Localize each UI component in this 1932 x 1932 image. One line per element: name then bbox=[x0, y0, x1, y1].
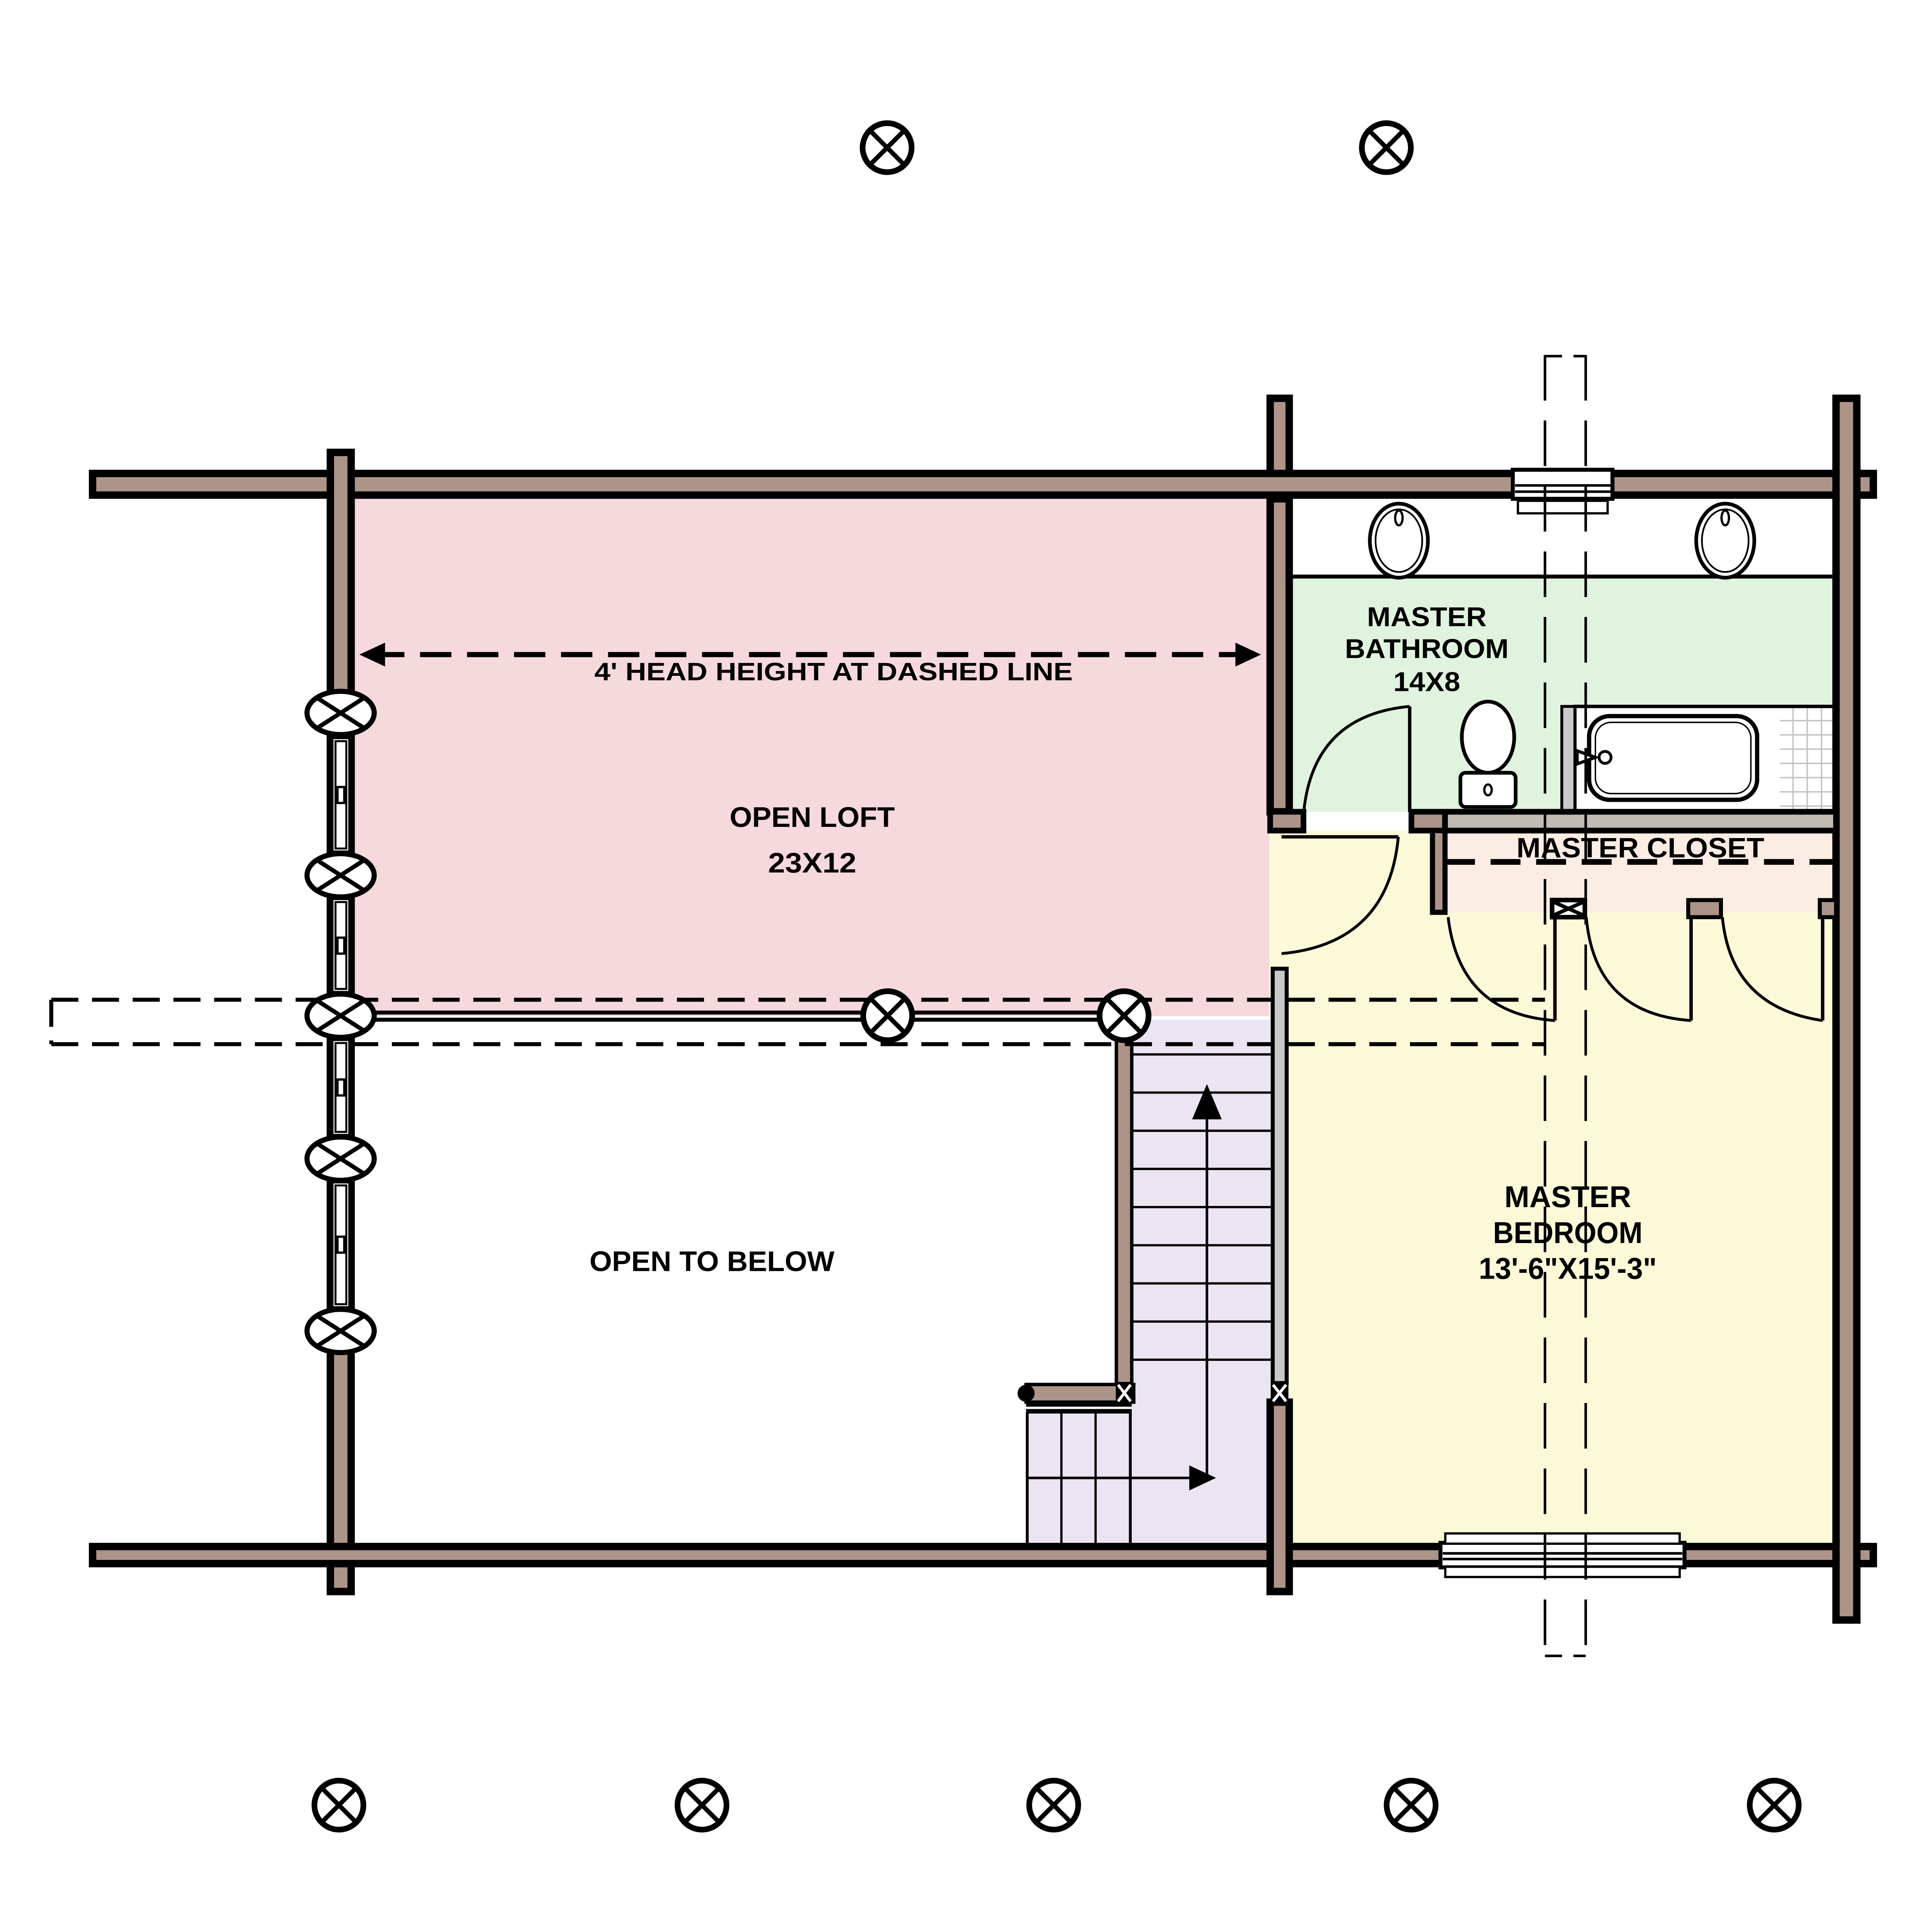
column-marker-icon bbox=[307, 994, 374, 1037]
tub-partition-wall bbox=[1562, 706, 1575, 812]
closet-north-wall bbox=[1445, 812, 1836, 831]
bathroom-label-line1: MASTER bbox=[1367, 601, 1487, 632]
window-symbol bbox=[332, 737, 350, 852]
window-symbol bbox=[332, 1182, 350, 1308]
column-marker-icon bbox=[1387, 1781, 1436, 1830]
north-wall-window bbox=[1513, 470, 1612, 514]
floor-plan-page: 4' HEAD HEIGHT AT DASHED LINE OPEN LOFT … bbox=[0, 0, 1932, 1932]
open-to-below-label: OPEN TO BELOW bbox=[590, 1245, 835, 1277]
head-height-label: 4' HEAD HEIGHT AT DASHED LINE bbox=[594, 657, 1073, 685]
column-marker-icon bbox=[862, 123, 912, 172]
stair-half-wall bbox=[1273, 969, 1287, 1383]
newel-post-icon bbox=[1271, 1383, 1289, 1404]
railing-end-cap bbox=[1017, 1385, 1034, 1402]
closet-post bbox=[1820, 900, 1836, 917]
sink-symbol bbox=[1696, 503, 1754, 578]
divider-wall-lower bbox=[1270, 1402, 1289, 1592]
bedroom-label-line2: BEDROOM bbox=[1493, 1216, 1643, 1250]
column-marker-icon bbox=[307, 691, 374, 735]
column-marker-icon bbox=[1029, 1781, 1078, 1830]
open-loft-size-label: 23X12 bbox=[768, 847, 856, 879]
closet-post bbox=[1688, 900, 1721, 917]
column-marker-icon bbox=[1362, 123, 1411, 172]
column-marker-icon bbox=[677, 1781, 726, 1830]
bathtub-symbol bbox=[1575, 706, 1836, 812]
column-marker-icon bbox=[307, 854, 374, 897]
roof-dashed-box bbox=[51, 1000, 330, 1044]
sink-symbol bbox=[1370, 503, 1428, 578]
closet-label: MASTER CLOSET bbox=[1517, 833, 1764, 864]
column-marker-icon bbox=[307, 1137, 374, 1180]
east-wall bbox=[1836, 398, 1857, 1620]
stair-side-railing bbox=[1116, 1020, 1132, 1384]
toilet-symbol bbox=[1460, 702, 1515, 807]
open-loft-area bbox=[351, 499, 1273, 1016]
column-marker-icon bbox=[1100, 991, 1149, 1040]
bedroom-label-line1: MASTER bbox=[1504, 1180, 1631, 1214]
column-marker-icon bbox=[307, 1309, 374, 1352]
bathroom-size-label: 14X8 bbox=[1393, 666, 1460, 697]
column-marker-icon bbox=[315, 1781, 364, 1830]
newel-post-icon bbox=[1116, 1383, 1133, 1404]
open-loft-label: OPEN LOFT bbox=[730, 801, 895, 833]
bathroom-south-wall-west bbox=[1270, 812, 1303, 831]
closet-west-wall bbox=[1432, 831, 1445, 913]
faucet-icon bbox=[1395, 510, 1403, 525]
bedroom-size-label: 13'-6"X15'-3" bbox=[1479, 1252, 1657, 1286]
floor-plan-drawing: 4' HEAD HEIGHT AT DASHED LINE OPEN LOFT … bbox=[0, 0, 1932, 1932]
window-symbol bbox=[332, 1039, 350, 1136]
divider-log-stub-top bbox=[1270, 398, 1289, 474]
column-marker-icon bbox=[863, 991, 912, 1040]
south-wall-window bbox=[1440, 1534, 1685, 1577]
window-symbol bbox=[1440, 1543, 1685, 1567]
column-marker-icon bbox=[1750, 1781, 1799, 1830]
bathroom-label-line2: BATHROOM bbox=[1345, 633, 1509, 664]
loft-bathroom-divider-wall bbox=[1270, 499, 1289, 812]
window-symbol bbox=[332, 898, 350, 993]
closet-post-x-icon bbox=[1552, 900, 1585, 917]
bathroom-south-wall-east bbox=[1412, 812, 1445, 831]
faucet-icon bbox=[1721, 510, 1729, 525]
